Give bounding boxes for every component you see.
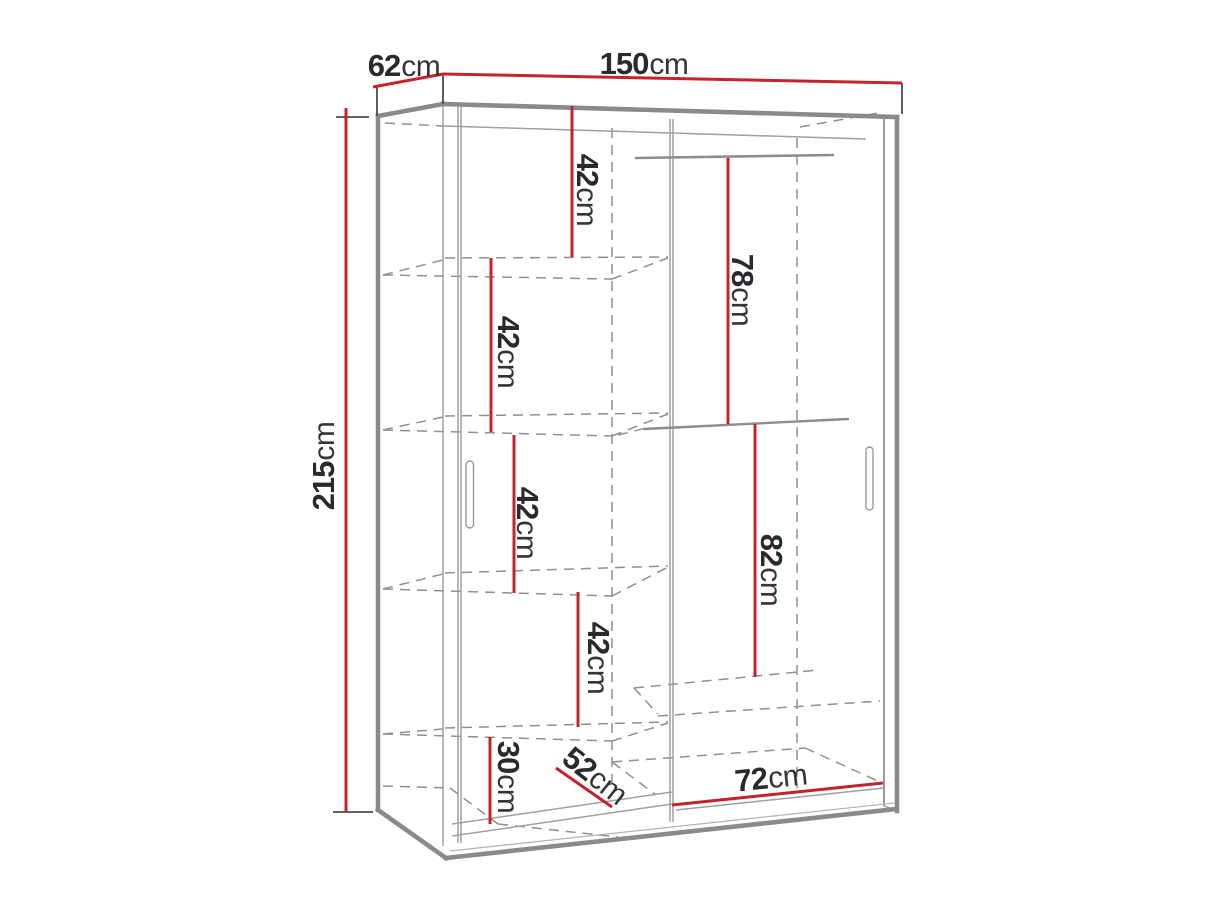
height-dim-label: 215cm (308, 422, 340, 511)
right-door-handle (866, 447, 873, 510)
wardrobe-dimension-diagram: 150cm 62cm 215cm 42cm 42cm 42cm 42cm 30c… (0, 0, 1219, 914)
right-width-dim-label: 72cm (733, 758, 808, 797)
shelf2-dim-label: 42cm (492, 316, 524, 388)
height-unit: cm (308, 422, 341, 461)
shelf1-dim-label: 42cm (571, 154, 603, 226)
width-value: 150 (600, 46, 649, 81)
hanging-top-dim-label: 78cm (726, 254, 758, 326)
bottom-left-dim-label: 30cm (492, 741, 524, 813)
shelf4-dim-label: 42cm (582, 622, 614, 694)
top-slab-edges (333, 73, 902, 812)
depth-unit: cm (401, 50, 440, 83)
door-panel-lines (443, 106, 896, 851)
wardrobe-outline (378, 104, 897, 858)
depth-dim-label: 62cm (368, 50, 440, 82)
height-value: 215 (306, 462, 341, 511)
clothes-rail (636, 155, 833, 158)
depth-value: 62 (368, 48, 400, 83)
right-column-shelf (644, 419, 848, 429)
shelf3-dim-label: 42cm (511, 487, 543, 559)
dimension-lines (346, 74, 902, 824)
hanging-bottom-dim-label: 82cm (755, 534, 787, 606)
width-unit: cm (649, 48, 688, 81)
left-door-handle (466, 461, 474, 528)
width-dim-label: 150cm (600, 48, 689, 80)
